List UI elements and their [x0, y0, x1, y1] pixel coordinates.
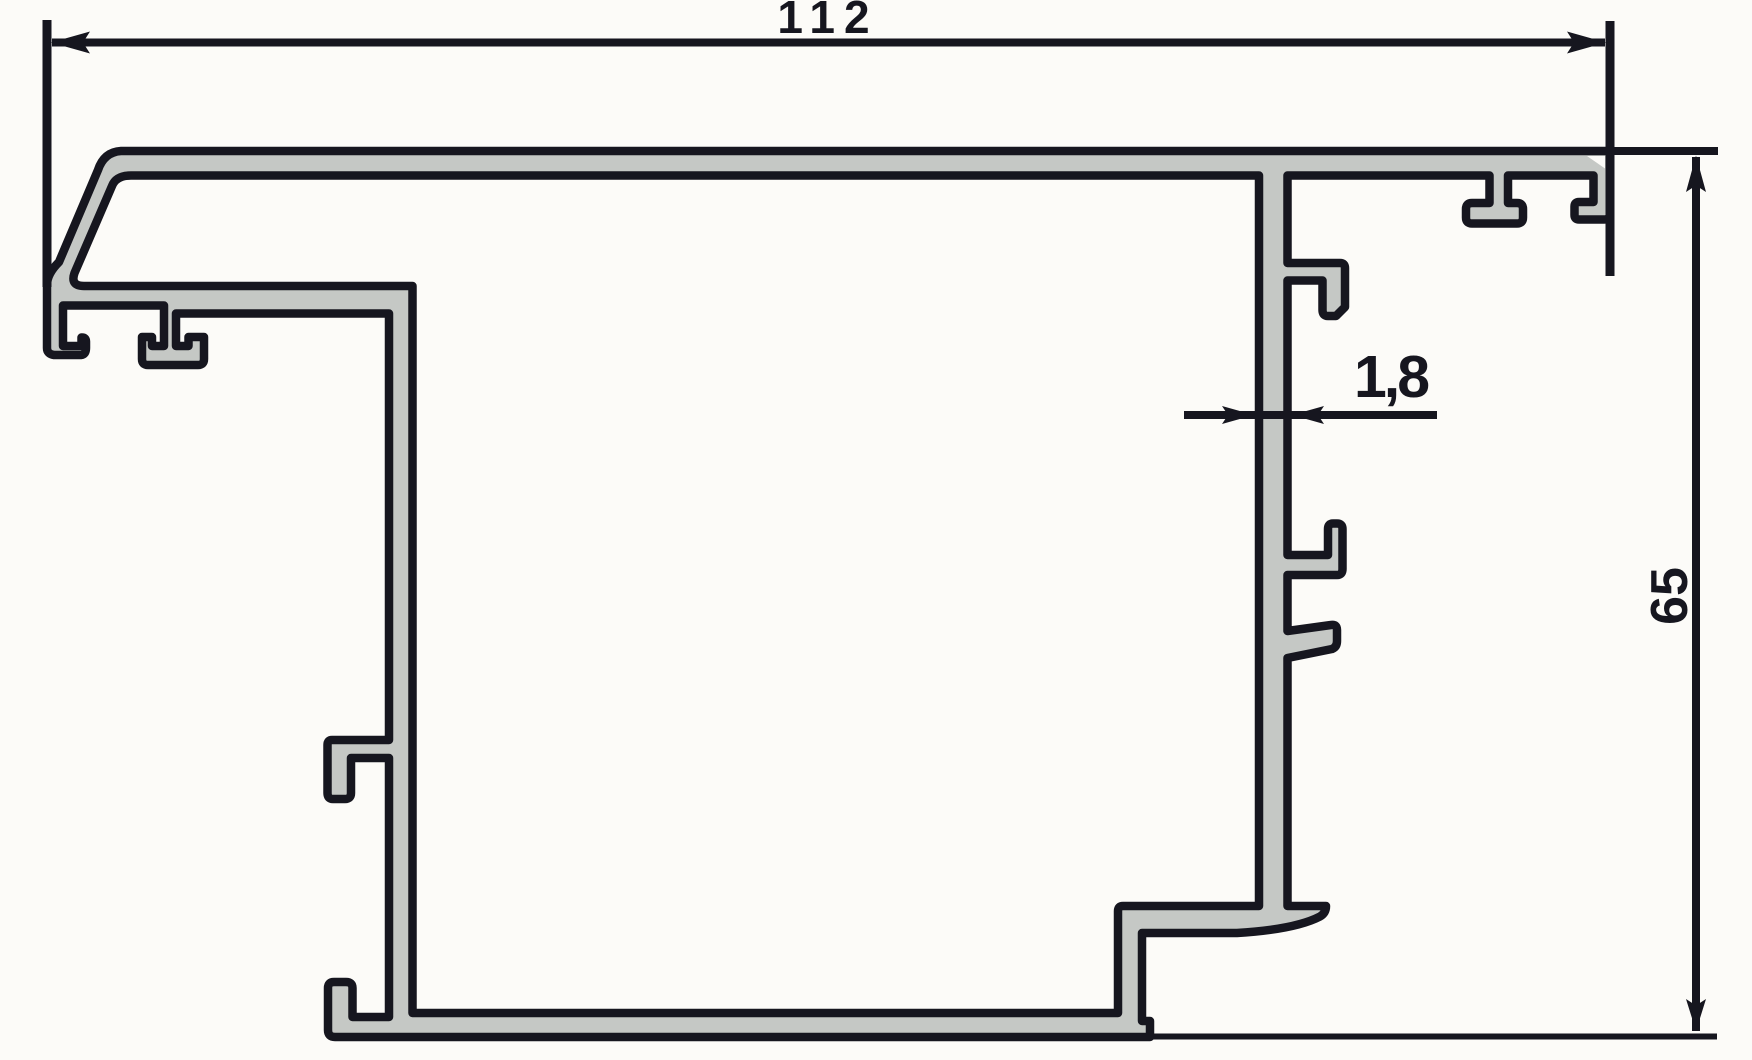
svg-text:112: 112 — [777, 0, 878, 43]
svg-text:1,8: 1,8 — [1354, 344, 1428, 410]
svg-text:65: 65 — [1641, 567, 1699, 625]
